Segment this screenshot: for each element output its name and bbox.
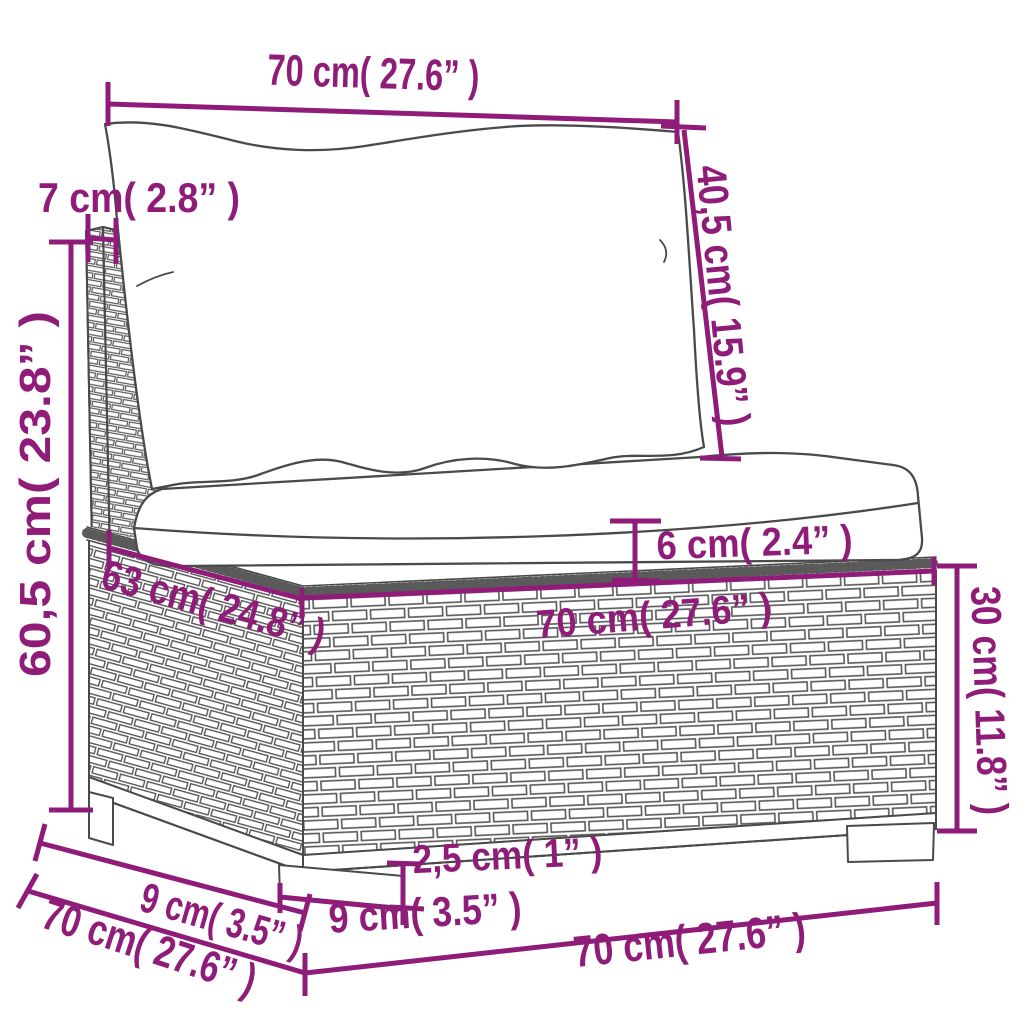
- base-height-label: 30 cm( 11.8” ): [962, 585, 1017, 816]
- sofa-dimension-drawing: 70 cm( 27.6” ) 7 cm( 2.8” ) 40,5 cm( 15.…: [0, 0, 1024, 1024]
- back-width-label: 70 cm( 27.6” ): [267, 46, 480, 102]
- back-left-leg: [89, 792, 113, 845]
- seat-cushion-thickness-label: 6 cm( 2.4” ): [656, 518, 853, 569]
- product-dimension-diagram: 70 cm( 27.6” ) 7 cm( 2.8” ) 40,5 cm( 15.…: [0, 0, 1024, 1024]
- total-width-label: 70 cm( 27.6” ): [571, 904, 808, 977]
- front-right-leg: [847, 823, 934, 862]
- back-panel-thickness-label: 7 cm( 2.8” ): [38, 174, 240, 221]
- leg-height-label: 2,5 cm( 1” ): [412, 830, 604, 882]
- total-height-label: 60,5 cm( 23.8” ): [11, 311, 60, 677]
- sofa-artwork: [86, 122, 936, 907]
